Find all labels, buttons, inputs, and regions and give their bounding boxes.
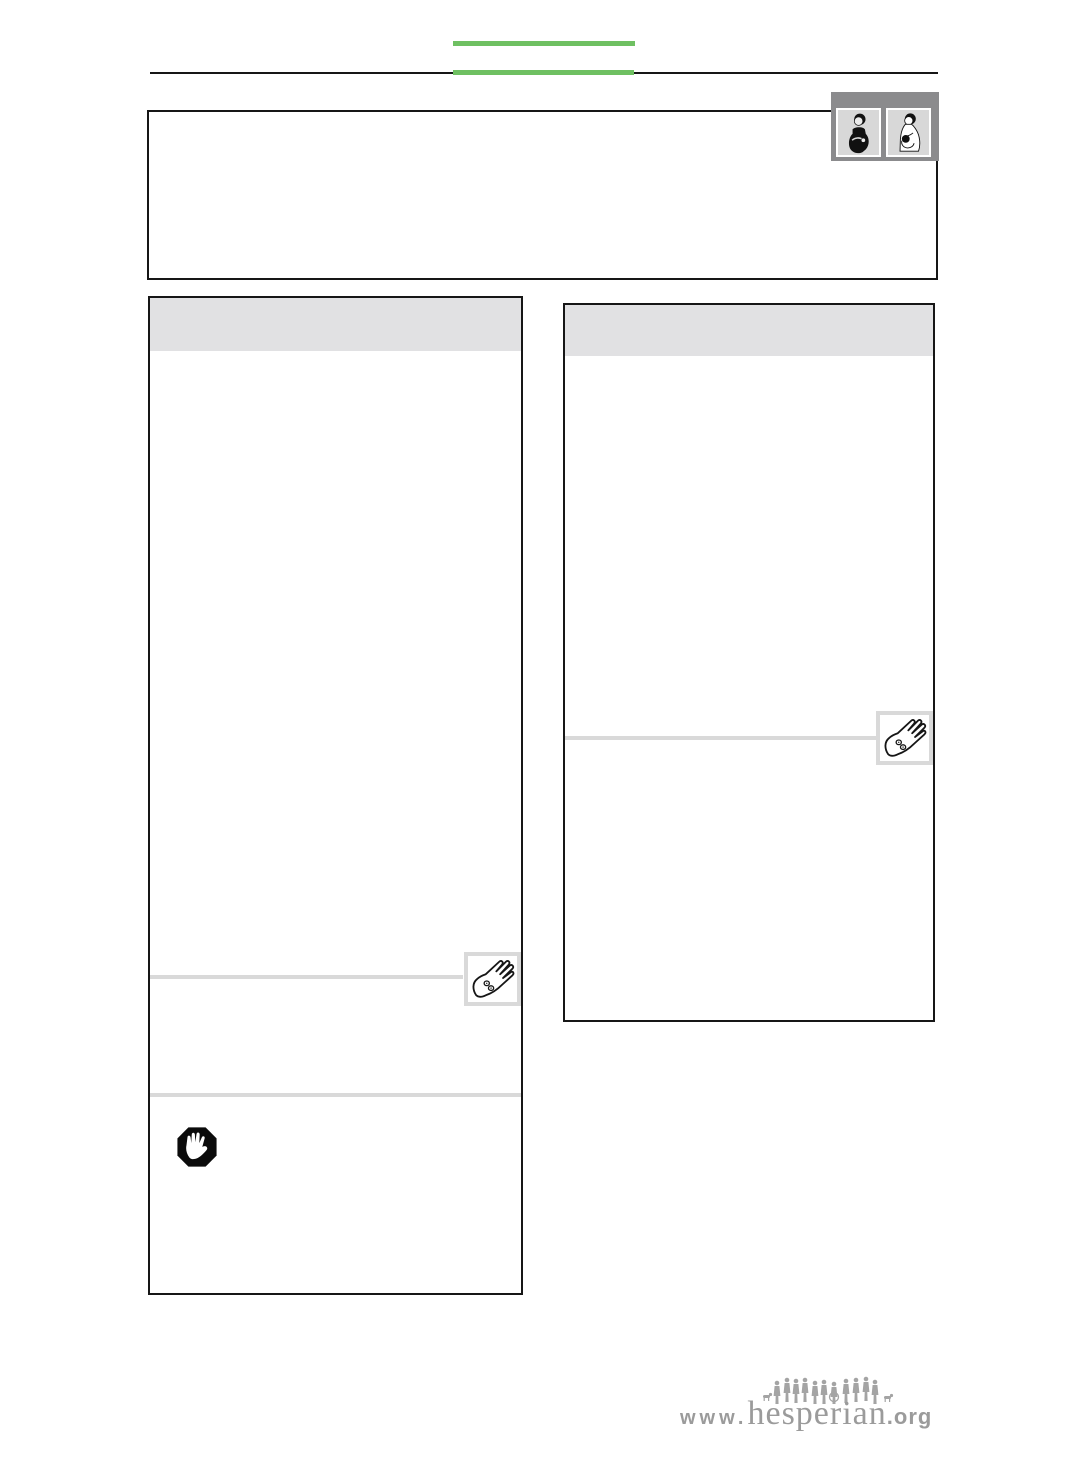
intro-box (147, 110, 938, 280)
document-page: www.hesperian.org (0, 0, 1088, 1463)
logo-org-text: .org (887, 1404, 933, 1430)
stop-hand-octagon-icon (176, 1126, 218, 1168)
hesperian-logo: www.hesperian.org (680, 1374, 936, 1430)
breastfeeding-woman-icon (886, 108, 931, 157)
hand-with-pills-icon (464, 952, 521, 1006)
pregnant-woman-icon (836, 108, 881, 157)
left-panel (148, 296, 523, 1295)
left-panel-header (150, 298, 521, 351)
right-panel (563, 303, 935, 1022)
top-green-rule (453, 41, 635, 46)
chapter-tab (831, 92, 939, 161)
lower-green-rule (453, 70, 634, 75)
left-panel-separator-1 (150, 975, 463, 979)
right-panel-separator (565, 736, 879, 740)
logo-www-text: www. (680, 1407, 747, 1430)
left-panel-separator-2 (150, 1093, 521, 1097)
hand-with-pills-icon (876, 711, 933, 765)
right-panel-header (565, 305, 933, 356)
hesperian-url: www.hesperian.org (680, 1395, 936, 1433)
logo-name-text: hesperian (747, 1395, 886, 1433)
